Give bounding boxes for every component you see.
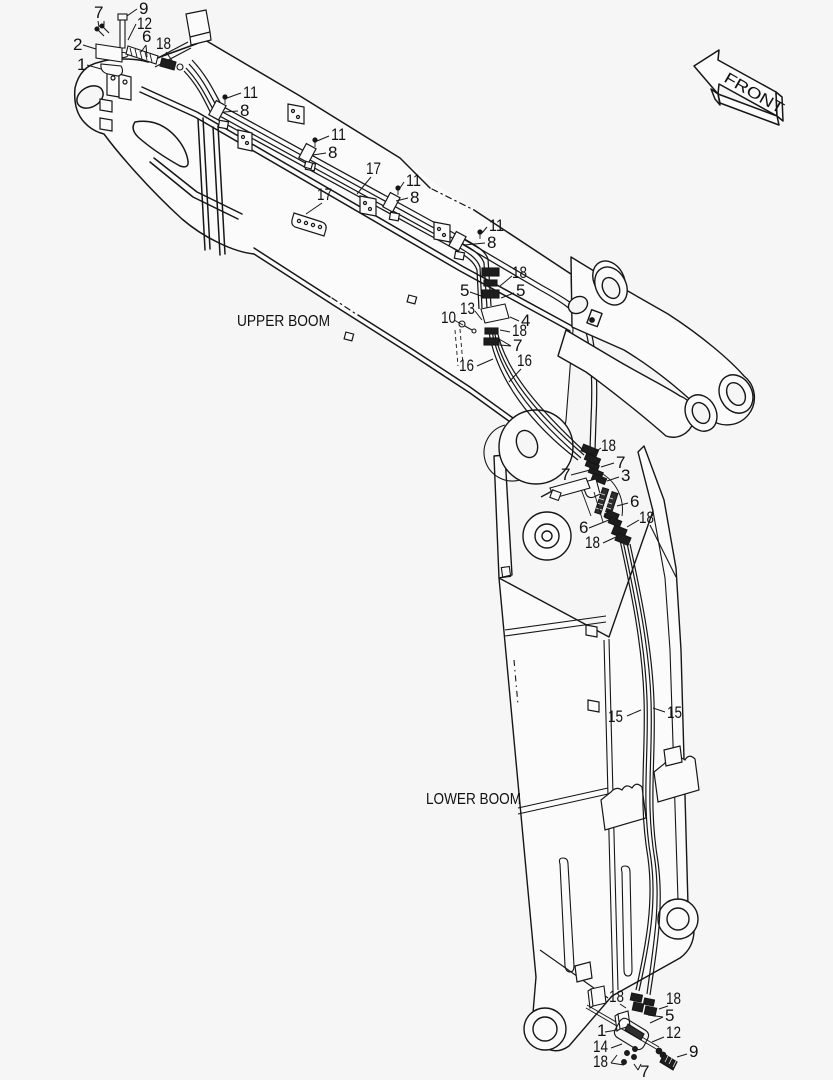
svg-text:18: 18	[585, 533, 600, 552]
svg-text:9: 9	[689, 1042, 698, 1061]
svg-text:3: 3	[621, 466, 630, 485]
svg-text:8: 8	[328, 143, 337, 162]
svg-text:16: 16	[459, 356, 474, 375]
svg-text:11: 11	[331, 125, 346, 144]
svg-text:8: 8	[240, 101, 249, 120]
svg-text:10: 10	[441, 308, 456, 327]
svg-text:18: 18	[639, 508, 654, 527]
svg-text:LOWER BOOM: LOWER BOOM	[426, 791, 521, 808]
svg-text:17: 17	[366, 159, 381, 178]
svg-text:2: 2	[73, 35, 82, 54]
svg-text:16: 16	[517, 351, 532, 370]
svg-text:11: 11	[243, 83, 258, 102]
svg-text:18: 18	[609, 987, 624, 1006]
svg-text:7: 7	[561, 465, 570, 484]
svg-text:5: 5	[516, 281, 525, 300]
svg-text:17: 17	[317, 185, 332, 204]
svg-text:18: 18	[593, 1052, 608, 1071]
svg-text:18: 18	[512, 263, 527, 282]
svg-text:8: 8	[487, 233, 496, 252]
svg-text:15: 15	[608, 707, 623, 726]
svg-text:7: 7	[94, 3, 103, 22]
svg-text:7: 7	[640, 1062, 649, 1080]
svg-text:1: 1	[77, 55, 86, 74]
svg-text:12: 12	[666, 1023, 681, 1042]
svg-text:18: 18	[601, 436, 616, 455]
svg-text:13: 13	[460, 299, 475, 318]
svg-text:18: 18	[156, 34, 171, 53]
svg-text:UPPER BOOM: UPPER BOOM	[237, 313, 330, 330]
svg-text:8: 8	[410, 188, 419, 207]
svg-text:6: 6	[142, 27, 151, 46]
svg-text:5: 5	[460, 281, 469, 300]
svg-text:15: 15	[667, 703, 682, 722]
